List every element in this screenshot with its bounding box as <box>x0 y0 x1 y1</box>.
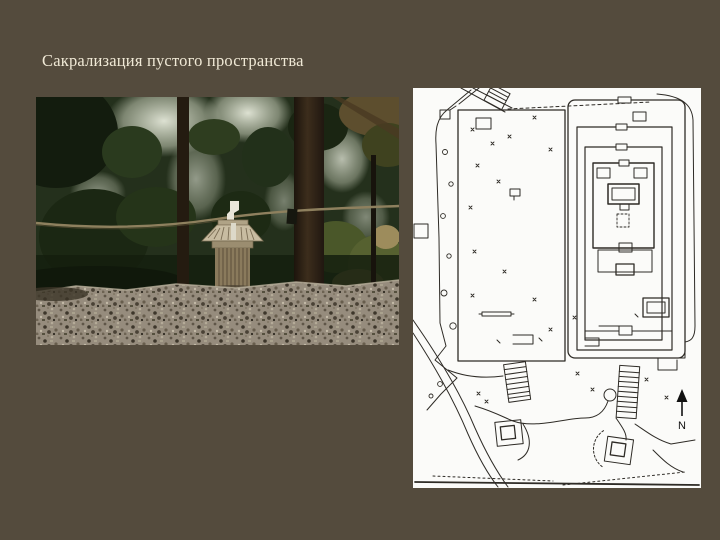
plan-paper <box>413 88 701 488</box>
gravel-ground <box>36 280 399 345</box>
site-plan-drawing: N <box>413 88 701 488</box>
site-plan: N <box>413 88 701 488</box>
slide-background: Сакрализация пустого пространства <box>0 0 720 540</box>
slide-title: Сакрализация пустого пространства <box>42 51 304 71</box>
shrine-photo-drawing <box>36 97 399 345</box>
shrine-photo <box>36 97 399 345</box>
hanging-cloth <box>286 209 297 225</box>
compass-north-label: N <box>678 420 686 432</box>
